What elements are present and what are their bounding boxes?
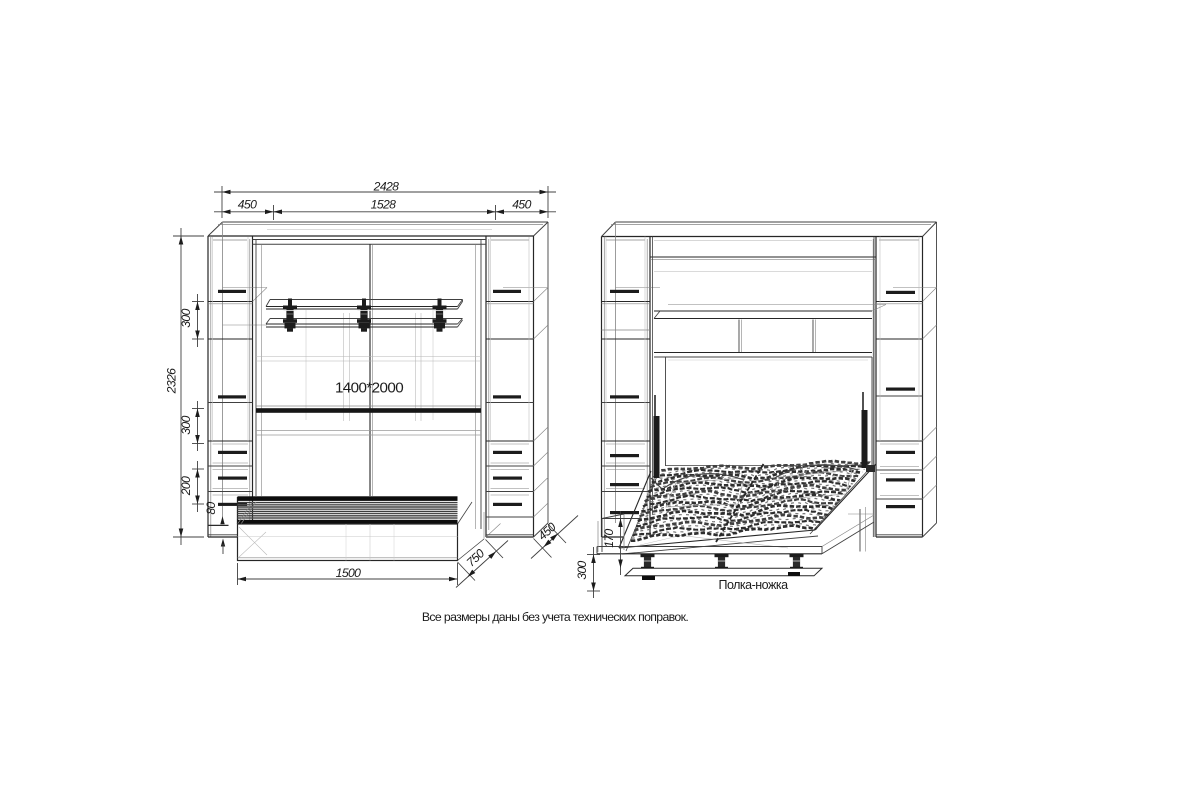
svg-text:170: 170 — [602, 528, 616, 547]
svg-text:1528: 1528 — [371, 198, 397, 212]
svg-text:2428: 2428 — [373, 180, 400, 194]
svg-text:450: 450 — [238, 198, 257, 212]
svg-text:200: 200 — [179, 476, 193, 496]
svg-text:750: 750 — [464, 546, 488, 569]
svg-text:Все размеры даны без учета тех: Все размеры даны без учета технических п… — [422, 610, 688, 624]
svg-text:300: 300 — [575, 560, 589, 579]
svg-text:1500: 1500 — [336, 566, 362, 580]
svg-text:80: 80 — [204, 502, 218, 515]
svg-text:450: 450 — [535, 520, 559, 543]
svg-text:1400*2000: 1400*2000 — [335, 380, 403, 397]
svg-text:2326: 2326 — [165, 368, 179, 395]
svg-text:450: 450 — [512, 198, 531, 212]
svg-text:300: 300 — [179, 415, 193, 434]
svg-text:300: 300 — [179, 308, 193, 327]
svg-text:Полка-ножка: Полка-ножка — [718, 578, 788, 592]
